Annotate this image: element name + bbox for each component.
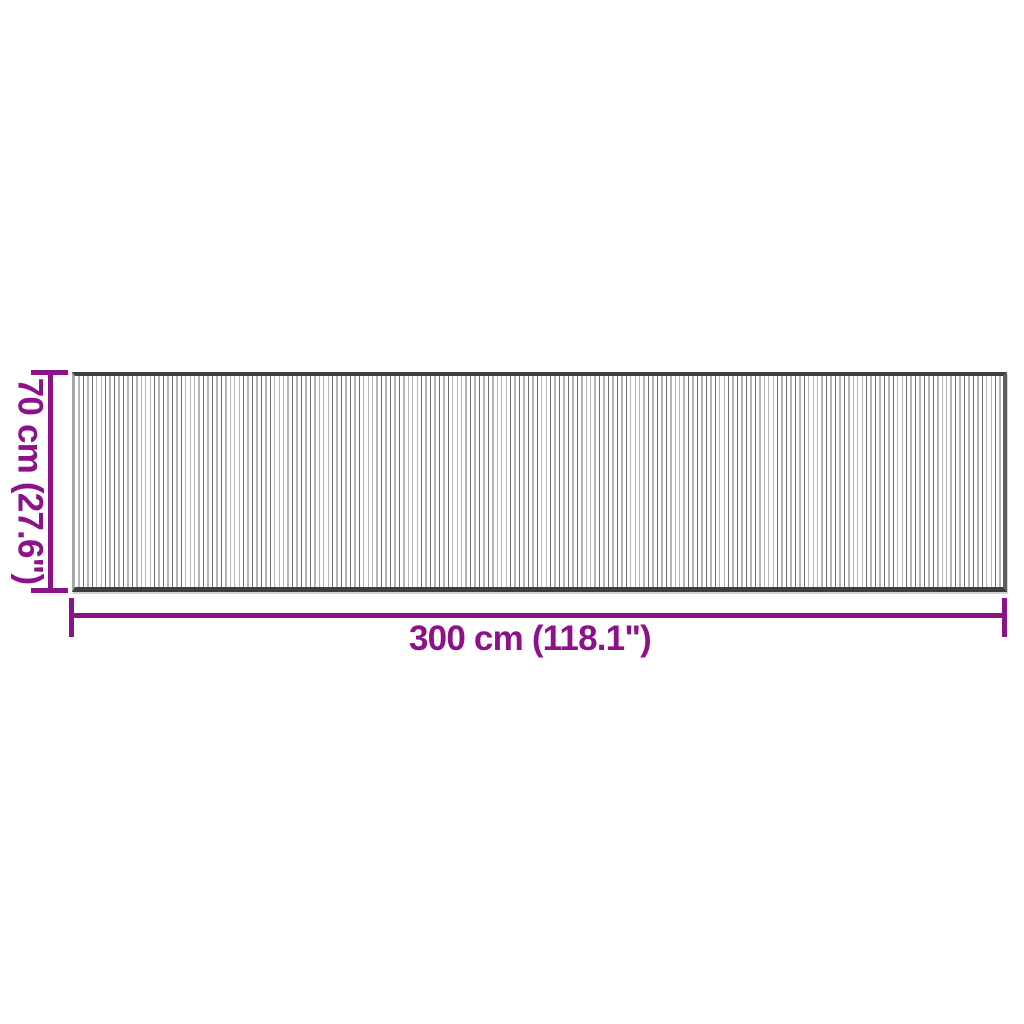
width-label: 300 cm (118.1")	[409, 621, 651, 656]
height-label: 70 cm (27.6")	[13, 378, 48, 585]
horizontal-dimension-line	[72, 613, 1005, 618]
vertical-dimension-cap-bottom	[31, 588, 68, 593]
dimension-diagram: 70 cm (27.6") 300 cm (118.1")	[0, 0, 1024, 1024]
horizontal-dimension-cap-right	[1002, 598, 1007, 637]
rug-graphic	[72, 372, 1007, 592]
rug-stripes-texture	[75, 376, 1003, 587]
